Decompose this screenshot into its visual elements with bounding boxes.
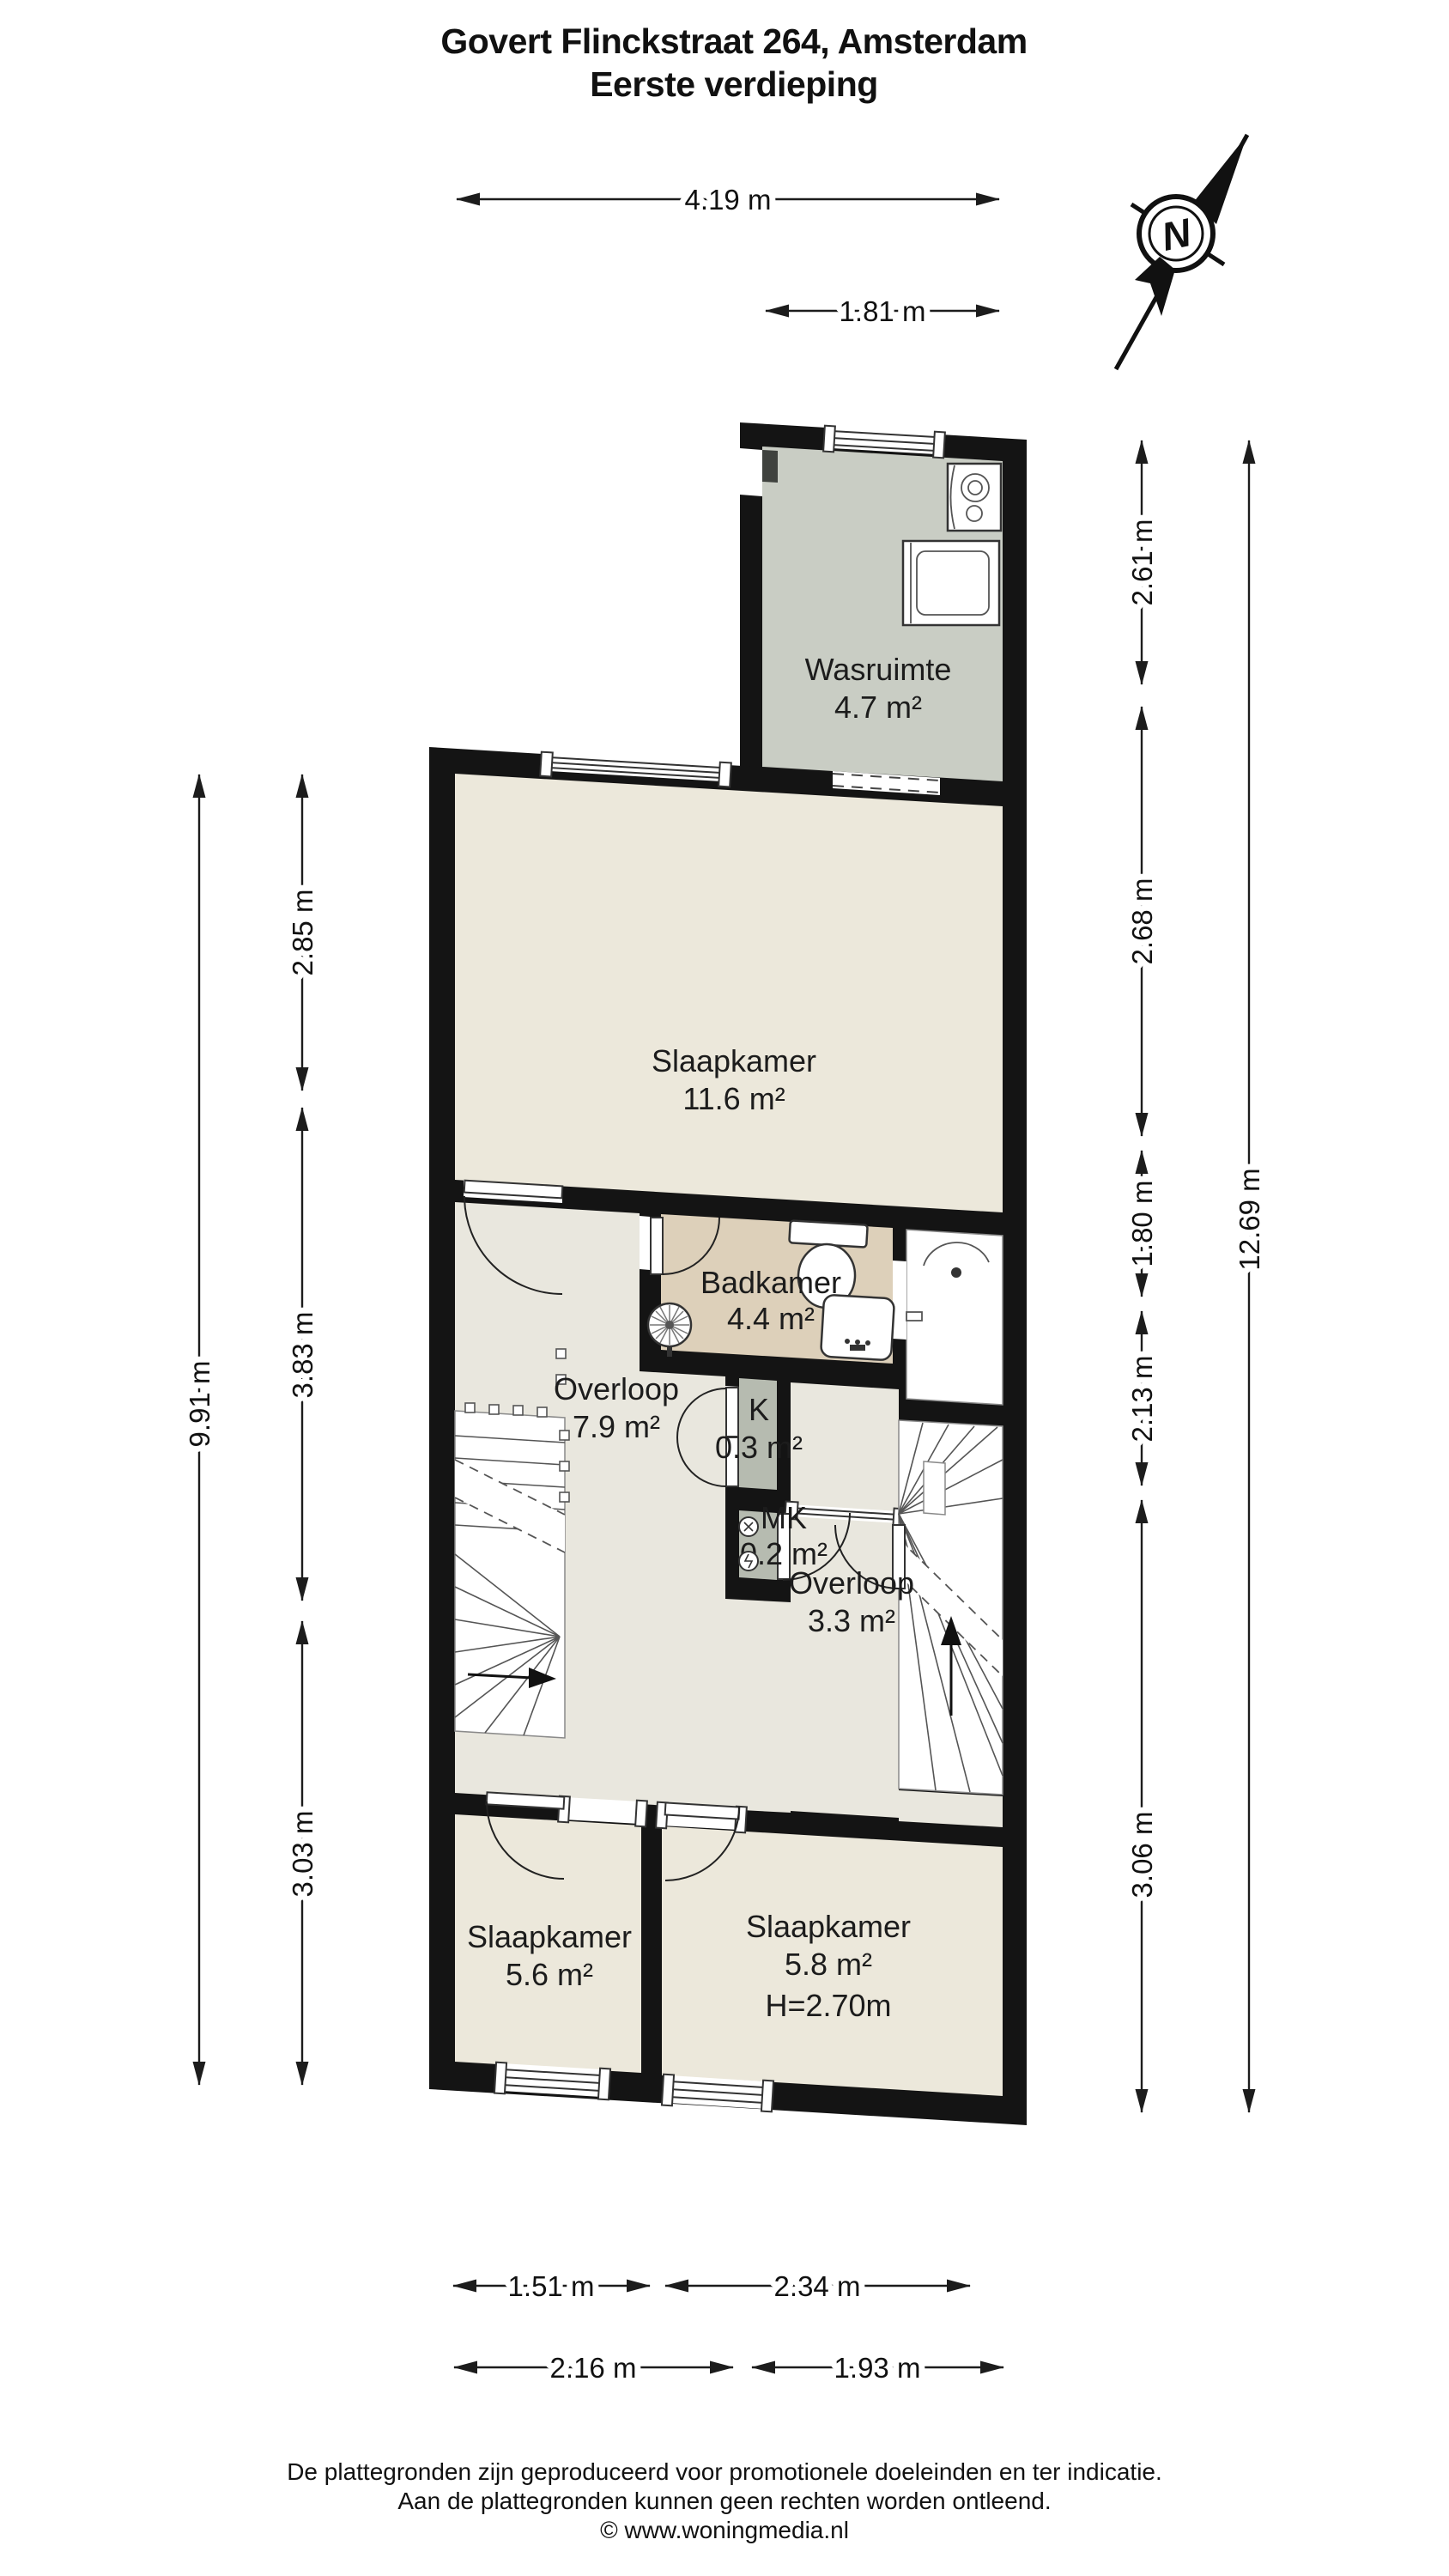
label-badkamer-area: 4.4 m²: [727, 1301, 815, 1336]
label-slaapkamer-boven-area: 11.6 m²: [682, 1081, 785, 1116]
label-overloop-groot: Overloop: [554, 1371, 679, 1406]
duct-inset: [762, 450, 778, 483]
footer-line2: Aan de plattegronden kunnen geen rechten…: [397, 2488, 1051, 2514]
label-slaapkamer-links-area: 5.6 m²: [506, 1957, 593, 1992]
dim-bottom-outer-left: 2.16 m: [550, 2352, 637, 2384]
dim-top-inner: 1.81 m: [840, 295, 926, 327]
label-kast: K: [749, 1392, 769, 1427]
dim-right-seg4: 2.13 m: [1126, 1356, 1158, 1443]
label-wasruimte-area: 4.7 m²: [834, 690, 922, 725]
floor-stair-foot: [899, 1790, 1003, 1827]
boiler-icon: [948, 464, 1001, 531]
dim-right-seg1: 2.61 m: [1126, 519, 1158, 606]
stairs-icon-right: [899, 1420, 1003, 1795]
label-slaapkamer-rechts-height: H=2.70m: [765, 1988, 891, 2023]
dim-left-outer: 9.91 m: [184, 1361, 215, 1448]
label-overloop-klein-area: 3.3 m²: [808, 1603, 895, 1638]
label-slaapkamer-rechts: Slaapkamer: [746, 1909, 911, 1944]
floor-slaapkamer-boven: [455, 774, 1003, 1212]
label-overloop-klein: Overloop: [789, 1565, 914, 1601]
door-opening-wasruimte: [740, 448, 762, 496]
dim-left-seg2: 3.83 m: [287, 1312, 318, 1399]
label-kast-area: 0.3 m²: [715, 1430, 803, 1465]
dim-right-seg3: 1.80 m: [1126, 1181, 1158, 1267]
label-wasruimte: Wasruimte: [805, 652, 952, 687]
dim-right-outer: 12.69 m: [1234, 1168, 1265, 1270]
label-slaapkamer-links: Slaapkamer: [467, 1919, 632, 1954]
dim-right-seg2: 2.68 m: [1126, 878, 1158, 965]
label-badkamer: Badkamer: [700, 1265, 841, 1300]
dim-bottom-inner-left: 1.51 m: [508, 2270, 595, 2302]
footer-line1: De plattegronden zijn geproduceerd voor …: [287, 2458, 1162, 2485]
label-meterkast: MK: [761, 1500, 807, 1535]
dim-left-seg1: 2.85 m: [287, 890, 318, 976]
footer-line3: © www.woningmedia.nl: [600, 2517, 849, 2543]
page-title: Govert Flinckstraat 264, Amsterdam Eerst…: [440, 21, 1027, 104]
compass-north-icon: N: [1116, 135, 1247, 369]
footer-disclaimer: De plattegronden zijn geproduceerd voor …: [287, 2458, 1162, 2543]
dim-bottom-inner-right: 2.34 m: [774, 2270, 861, 2302]
label-overloop-groot-area: 7.9 m²: [573, 1409, 660, 1444]
washing-machine-icon: [903, 541, 999, 625]
dim-right-seg5: 3.06 m: [1126, 1812, 1158, 1899]
dim-top-outer: 4.19 m: [685, 184, 772, 216]
title-line2: Eerste verdieping: [590, 64, 878, 104]
sink-icon: [821, 1295, 894, 1361]
title-line1: Govert Flinckstraat 264, Amsterdam: [440, 21, 1027, 61]
door-opening-shower: [893, 1261, 906, 1340]
label-slaapkamer-rechts-area: 5.8 m²: [785, 1947, 872, 1982]
label-slaapkamer-boven: Slaapkamer: [652, 1043, 816, 1078]
floor-shower: [906, 1230, 1003, 1405]
dim-left-seg3: 3.03 m: [287, 1811, 318, 1898]
dim-bottom-outer-right: 1.93 m: [834, 2352, 921, 2384]
floor-overloop-strip: [725, 1599, 791, 1813]
floorplan-canvas: Govert Flinckstraat 264, Amsterdam Eerst…: [0, 0, 1449, 2576]
